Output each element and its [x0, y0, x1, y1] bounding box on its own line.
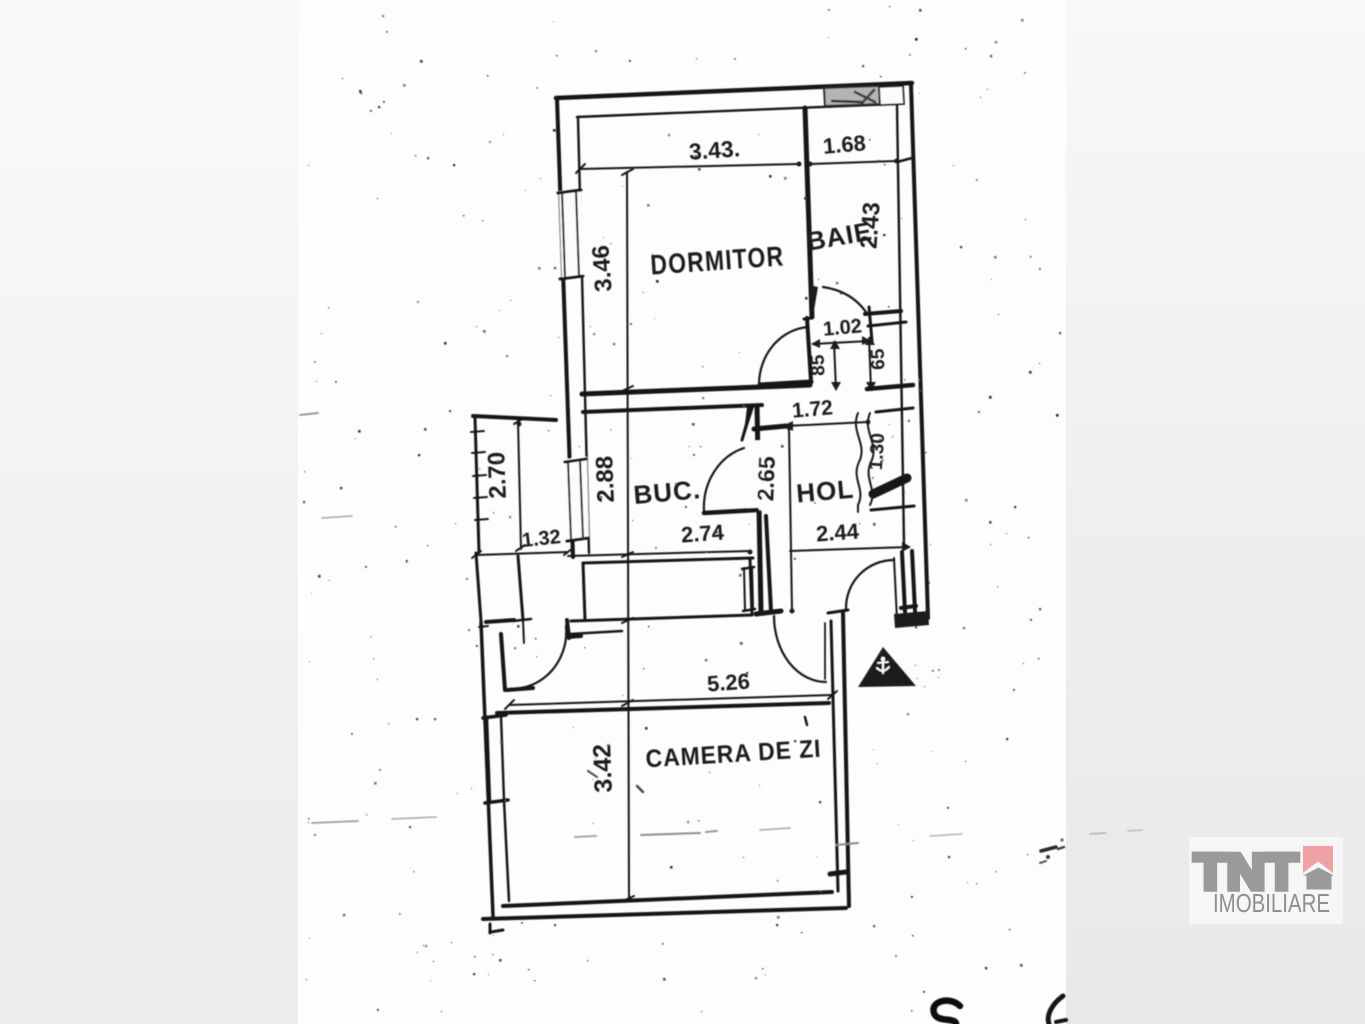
svg-text:65: 65 [868, 348, 890, 370]
svg-text:3.42: 3.42 [588, 743, 618, 793]
svg-text:5.26: 5.26 [706, 669, 750, 697]
svg-text:1.32: 1.32 [521, 526, 562, 552]
svg-text:2.43: 2.43 [855, 201, 885, 249]
svg-text:1.30: 1.30 [866, 432, 890, 470]
svg-text:1.02: 1.02 [822, 315, 863, 340]
svg-text:3.43.: 3.43. [688, 135, 741, 165]
svg-text:IMOBILIARE: IMOBILIARE [1213, 890, 1330, 918]
svg-text:1.68: 1.68 [822, 130, 867, 159]
svg-text:2.74: 2.74 [680, 520, 725, 548]
svg-text:2.88: 2.88 [591, 455, 620, 503]
svg-text:BUC.: BUC. [632, 474, 702, 510]
svg-text:1.72: 1.72 [791, 396, 834, 422]
svg-text:HOL: HOL [795, 474, 855, 509]
svg-text:3.46: 3.46 [587, 244, 617, 292]
svg-text:2.44: 2.44 [815, 519, 860, 547]
svg-text:2.70: 2.70 [483, 451, 512, 499]
svg-text:85: 85 [808, 354, 830, 376]
svg-text:2.65: 2.65 [752, 456, 780, 502]
